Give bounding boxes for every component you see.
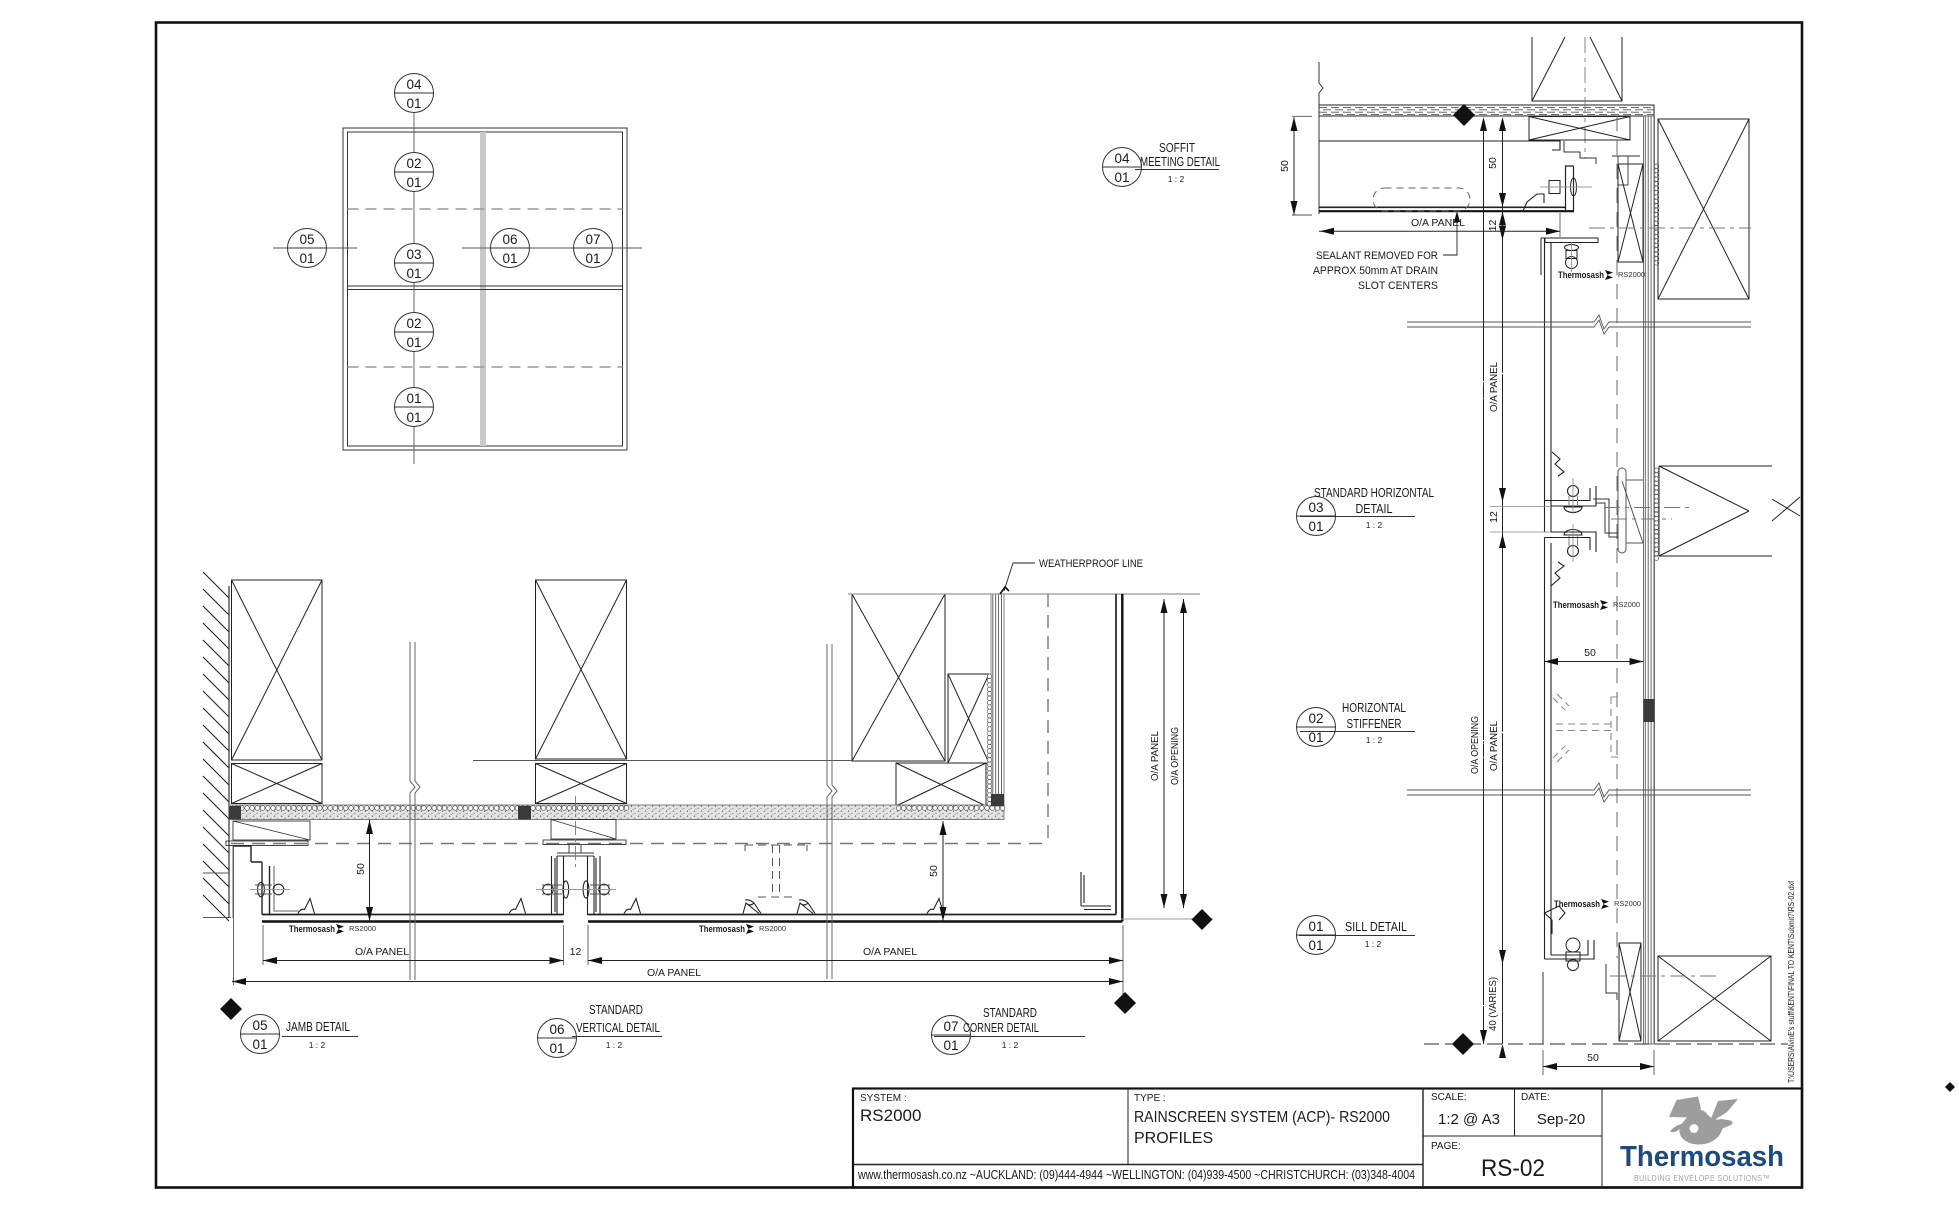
svg-text:01: 01 [1308,730,1323,745]
svg-text:03: 03 [406,247,421,262]
svg-text:STIFFENER: STIFFENER [1347,716,1402,731]
svg-text:1 : 2: 1 : 2 [606,1040,623,1050]
svg-text:01: 01 [1308,519,1323,534]
svg-text:RS2000: RS2000 [759,924,786,933]
svg-text:06: 06 [549,1022,564,1037]
svg-text:01: 01 [549,1041,564,1056]
svg-text:50: 50 [1487,157,1499,169]
svg-text:1:2 @ A3: 1:2 @ A3 [1438,1111,1500,1128]
svg-text:1 : 2: 1 : 2 [1002,1040,1019,1050]
svg-text:12: 12 [1487,220,1499,232]
svg-text:PROFILES: PROFILES [1134,1130,1213,1147]
svg-text:1 : 2: 1 : 2 [309,1040,326,1050]
svg-text:50: 50 [1279,160,1291,172]
svg-text:50: 50 [1587,1052,1599,1064]
svg-text:STANDARD: STANDARD [983,1005,1037,1020]
svg-text:02: 02 [1308,711,1323,726]
svg-text:STANDARD: STANDARD [589,1002,643,1017]
svg-text:01: 01 [406,96,421,111]
svg-text:SOFFIT: SOFFIT [1159,140,1195,155]
svg-text:01: 01 [299,251,314,266]
svg-text:O/A PANEL: O/A PANEL [1149,731,1161,781]
svg-text:Thermosash: Thermosash [1554,899,1600,909]
svg-text:MEETING DETAIL: MEETING DETAIL [1140,154,1220,169]
svg-text:05: 05 [252,1018,267,1033]
svg-text:1 : 2: 1 : 2 [1168,174,1185,184]
svg-text:SCALE:: SCALE: [1431,1092,1467,1103]
svg-text:Thermosash: Thermosash [1553,600,1599,610]
svg-text:04: 04 [406,77,422,92]
svg-text:12: 12 [1488,511,1500,523]
svg-text:VERTICAL DETAIL: VERTICAL DETAIL [576,1020,660,1035]
svg-text:CORNER DETAIL: CORNER DETAIL [963,1020,1039,1035]
svg-text:50: 50 [1584,647,1596,659]
svg-text:RS2000: RS2000 [349,924,376,933]
svg-text:WEATHERPROOF LINE: WEATHERPROOF LINE [1039,558,1143,570]
svg-text:HORIZONTAL: HORIZONTAL [1342,700,1406,715]
svg-text:PAGE:: PAGE: [1431,1141,1461,1152]
svg-text:03: 03 [1308,500,1323,515]
svg-text:BUILDING ENVELOPE SOLUTIONS™: BUILDING ENVELOPE SOLUTIONS™ [1634,1173,1770,1183]
svg-text:RAINSCREEN SYSTEM (ACP)- RS200: RAINSCREEN SYSTEM (ACP)- RS2000 [1134,1109,1390,1126]
svg-text:01: 01 [406,335,421,350]
svg-text:01: 01 [943,1038,958,1053]
svg-text:1 : 2: 1 : 2 [1365,939,1382,949]
svg-text:O/A PANEL: O/A PANEL [355,946,409,958]
svg-text:O/A PANEL: O/A PANEL [647,967,701,979]
svg-text:1 : 2: 1 : 2 [1366,735,1383,745]
svg-text:O/A PANEL: O/A PANEL [1488,362,1500,412]
svg-text:07: 07 [585,232,600,247]
svg-text:JAMB DETAIL: JAMB DETAIL [286,1019,350,1034]
svg-text:01: 01 [252,1037,267,1052]
svg-text:Thermosash: Thermosash [1620,1141,1784,1173]
svg-text:O/A OPENING: O/A OPENING [1469,716,1481,774]
svg-text:01: 01 [1308,919,1323,934]
svg-text:APPROX 50mm AT DRAIN: APPROX 50mm AT DRAIN [1313,265,1438,277]
svg-text:01: 01 [502,251,517,266]
svg-text:12: 12 [570,946,582,958]
svg-text:1 : 2: 1 : 2 [1366,520,1383,530]
svg-text:Thermosash: Thermosash [699,924,745,934]
svg-text:05: 05 [299,232,314,247]
svg-text:01: 01 [406,266,421,281]
svg-text:01: 01 [585,251,600,266]
svg-text:RS2000: RS2000 [860,1106,921,1125]
svg-text:02: 02 [406,316,421,331]
svg-text:SLOT CENTERS: SLOT CENTERS [1358,280,1438,292]
svg-text:01: 01 [406,391,421,406]
svg-text:01: 01 [1114,170,1129,185]
svg-text:O/A OPENING: O/A OPENING [1169,727,1181,785]
svg-text:01: 01 [1308,938,1323,953]
svg-text:www.thermosash.co.nz ~AUCKLAND: www.thermosash.co.nz ~AUCKLAND: (09)444-… [857,1167,1415,1182]
svg-text:RS2000: RS2000 [1613,600,1640,609]
svg-text:Thermosash: Thermosash [289,924,335,934]
svg-text:RS-02: RS-02 [1481,1155,1545,1182]
svg-text:T:\USERS\AlvinE's stuff\KENT\F: T:\USERS\AlvinE's stuff\KENT\FINAL TO KE… [1786,880,1796,1083]
svg-text:DETAIL: DETAIL [1356,501,1393,516]
svg-text:RS2000: RS2000 [1614,899,1641,908]
svg-text:SILL DETAIL: SILL DETAIL [1345,919,1407,934]
svg-text:TYPE :: TYPE : [1134,1093,1166,1104]
svg-text:50: 50 [355,863,367,875]
svg-text:04: 04 [1114,151,1130,166]
svg-text:02: 02 [406,156,421,171]
svg-text:SEALANT REMOVED FOR: SEALANT REMOVED FOR [1316,250,1438,262]
svg-text:STANDARD HORIZONTAL: STANDARD HORIZONTAL [1314,485,1434,500]
svg-text:DATE:: DATE: [1521,1092,1550,1103]
svg-text:Thermosash: Thermosash [1558,270,1604,280]
svg-text:O/A PANEL: O/A PANEL [1488,721,1500,771]
svg-text:07: 07 [943,1019,958,1034]
svg-text:06: 06 [502,232,517,247]
svg-text:Sep-20: Sep-20 [1537,1111,1585,1128]
svg-text:01: 01 [406,175,421,190]
svg-text:RS2000: RS2000 [1618,270,1645,279]
svg-text:50: 50 [928,865,940,877]
svg-text:O/A PANEL: O/A PANEL [863,946,917,958]
svg-text:01: 01 [406,410,421,425]
svg-text:SYSTEM :: SYSTEM : [860,1093,907,1104]
svg-text:40 (VARIES): 40 (VARIES) [1487,977,1499,1031]
